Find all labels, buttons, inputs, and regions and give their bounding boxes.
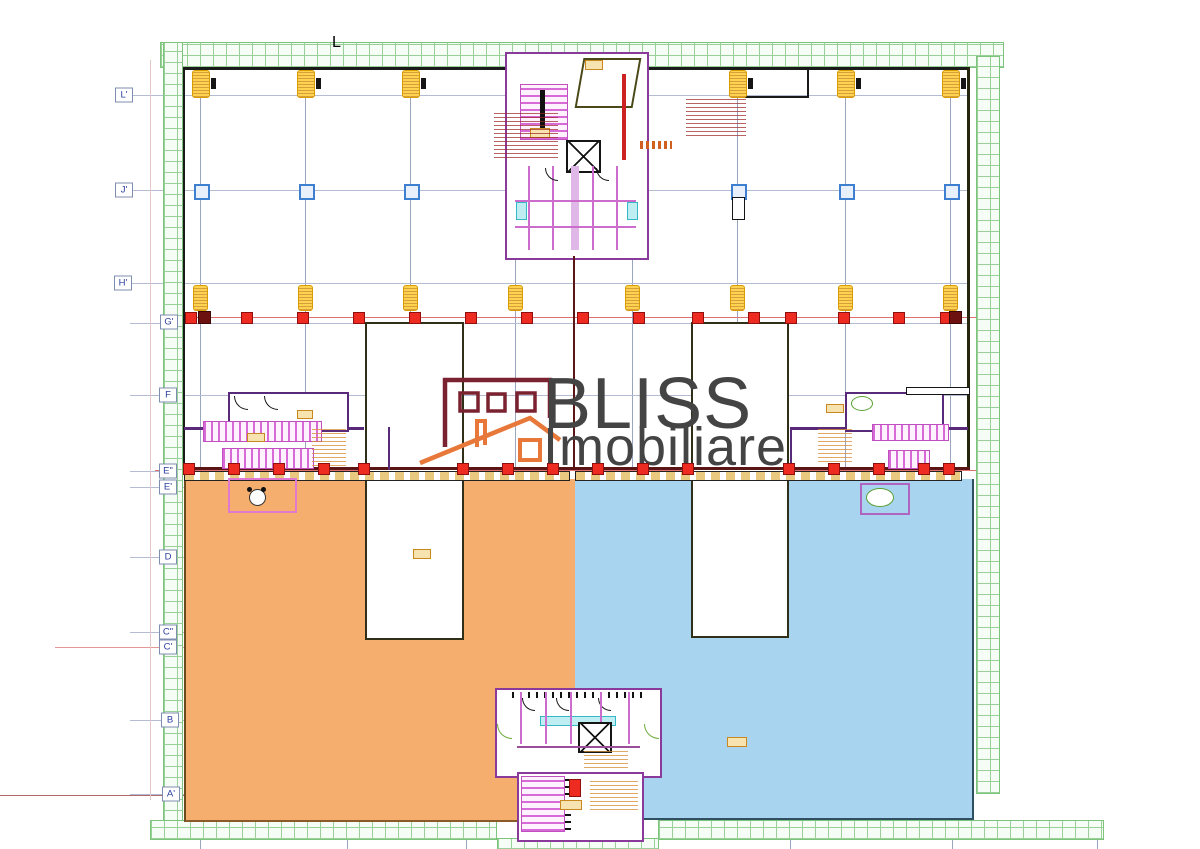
column-marker-yellow	[625, 285, 640, 311]
column-marker-tab	[211, 78, 216, 89]
axis-marker-red	[185, 312, 197, 324]
grid-row-label: C"	[159, 625, 177, 640]
axis-marker-red	[465, 312, 477, 324]
beam-outline	[732, 197, 745, 220]
axis-marker-red	[228, 463, 240, 475]
column-marker-tab	[748, 78, 753, 89]
grid-row-label: J'	[115, 183, 133, 198]
column-marker-yellow	[192, 70, 210, 98]
axis-marker-red	[873, 463, 885, 475]
column-marker-yellow	[837, 70, 855, 98]
column-marker-tab	[421, 78, 426, 89]
grid-node-blue	[299, 184, 315, 200]
axis-marker-red	[241, 312, 253, 324]
column-marker-yellow	[729, 70, 747, 98]
grid-node-blue	[404, 184, 420, 200]
marker-layer: L'J'H'G'FE"E'DC"C'BA'	[0, 0, 1200, 849]
axis-marker-red	[918, 463, 930, 475]
axis-marker-red	[838, 312, 850, 324]
axis-marker-red	[692, 312, 704, 324]
column-marker-yellow	[730, 285, 745, 311]
column-marker-yellow	[943, 285, 958, 311]
axis-marker-red	[409, 312, 421, 324]
grid-row-label: C'	[159, 640, 177, 655]
axis-marker-red	[297, 312, 309, 324]
grid-node-blue	[839, 184, 855, 200]
axis-marker-red	[183, 463, 195, 475]
axis-marker-darkred	[949, 311, 962, 324]
axis-marker-red	[637, 463, 649, 475]
axis-marker-red	[943, 463, 955, 475]
column-marker-yellow	[508, 285, 523, 311]
axis-marker-red	[457, 463, 469, 475]
axis-marker-red	[783, 463, 795, 475]
axis-marker-red	[577, 312, 589, 324]
column-marker-yellow	[403, 285, 418, 311]
axis-marker-red	[592, 463, 604, 475]
column-marker-yellow	[402, 70, 420, 98]
floor-plan-canvas: BLISS Imobiliare L L'J'H'G'FE"E'DC"C'BA'	[0, 0, 1200, 849]
axis-marker-red	[353, 312, 365, 324]
axis-marker-red	[358, 463, 370, 475]
axis-marker-red	[502, 463, 514, 475]
grid-row-label: G'	[160, 315, 178, 330]
grid-row-label: H'	[114, 276, 132, 291]
axis-marker-red	[893, 312, 905, 324]
column-marker-tab	[961, 78, 966, 89]
grid-row-label: B	[161, 713, 179, 728]
grid-row-label: E'	[159, 480, 177, 495]
grid-row-label: D	[159, 550, 177, 565]
column-marker-yellow	[942, 70, 960, 98]
column-marker-tab	[856, 78, 861, 89]
column-marker-yellow	[297, 70, 315, 98]
axis-marker-red	[828, 463, 840, 475]
axis-marker-red	[273, 463, 285, 475]
grid-row-label: E"	[159, 464, 177, 479]
grid-node-blue	[194, 184, 210, 200]
column-marker-yellow	[193, 285, 208, 311]
column-marker-tab	[316, 78, 321, 89]
axis-marker-red	[682, 463, 694, 475]
grid-row-label: L'	[115, 88, 133, 103]
axis-marker-red	[785, 312, 797, 324]
axis-marker-red	[318, 463, 330, 475]
column-marker-yellow	[838, 285, 853, 311]
column-marker-yellow	[298, 285, 313, 311]
axis-marker-red	[748, 312, 760, 324]
axis-marker-darkred	[198, 311, 211, 324]
grid-node-blue	[944, 184, 960, 200]
axis-marker-red	[633, 312, 645, 324]
axis-marker-red	[521, 312, 533, 324]
grid-row-label: A'	[162, 787, 180, 802]
axis-marker-red	[547, 463, 559, 475]
grid-row-label: F	[159, 388, 177, 403]
